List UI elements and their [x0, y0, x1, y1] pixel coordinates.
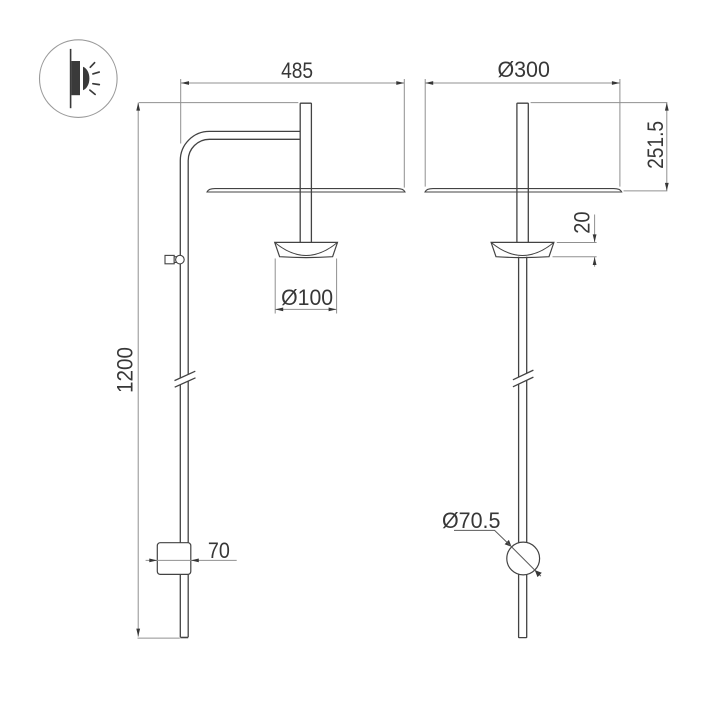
svg-text:251.5: 251.5: [643, 121, 668, 169]
svg-text:485: 485: [281, 58, 313, 83]
svg-text:Ø70.5: Ø70.5: [442, 508, 501, 533]
svg-text:1200: 1200: [113, 347, 138, 393]
svg-text:20: 20: [569, 211, 594, 233]
svg-text:Ø300: Ø300: [497, 57, 550, 82]
svg-text:Ø100: Ø100: [281, 285, 333, 310]
svg-text:70: 70: [208, 538, 230, 563]
